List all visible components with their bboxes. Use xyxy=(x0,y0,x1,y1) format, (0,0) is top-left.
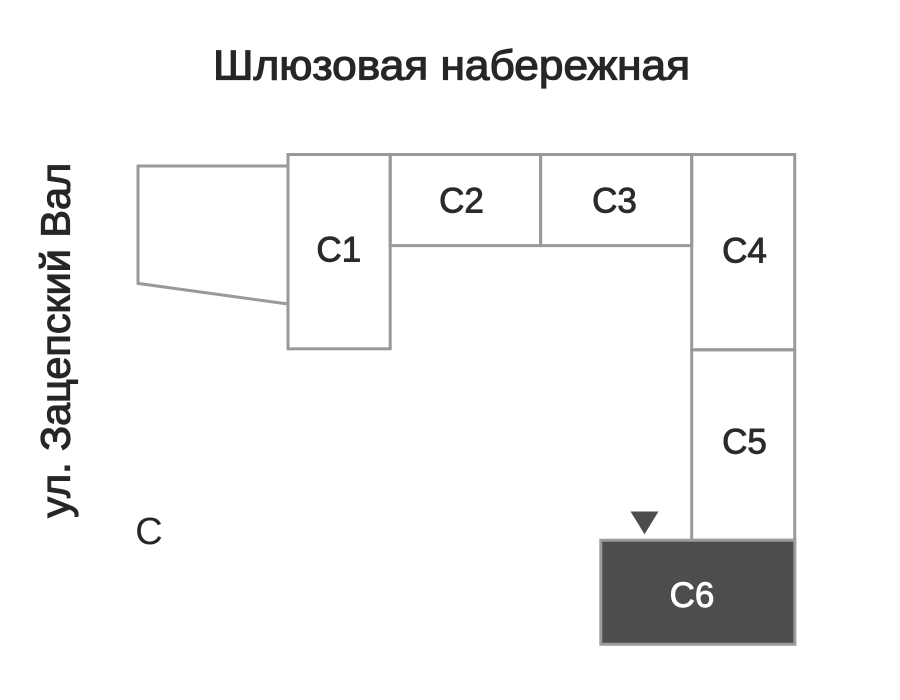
svg-text:С2: С2 xyxy=(439,182,484,221)
svg-text:ул. Зацепский Вал: ул. Зацепский Вал xyxy=(33,163,79,518)
svg-text:Шлюзовая набережная: Шлюзовая набережная xyxy=(213,42,690,89)
svg-text:С4: С4 xyxy=(722,232,767,271)
svg-text:С: С xyxy=(135,511,162,553)
svg-text:С5: С5 xyxy=(722,423,767,462)
svg-text:С1: С1 xyxy=(316,231,361,270)
svg-text:С3: С3 xyxy=(592,182,637,221)
svg-text:С6: С6 xyxy=(670,576,715,615)
